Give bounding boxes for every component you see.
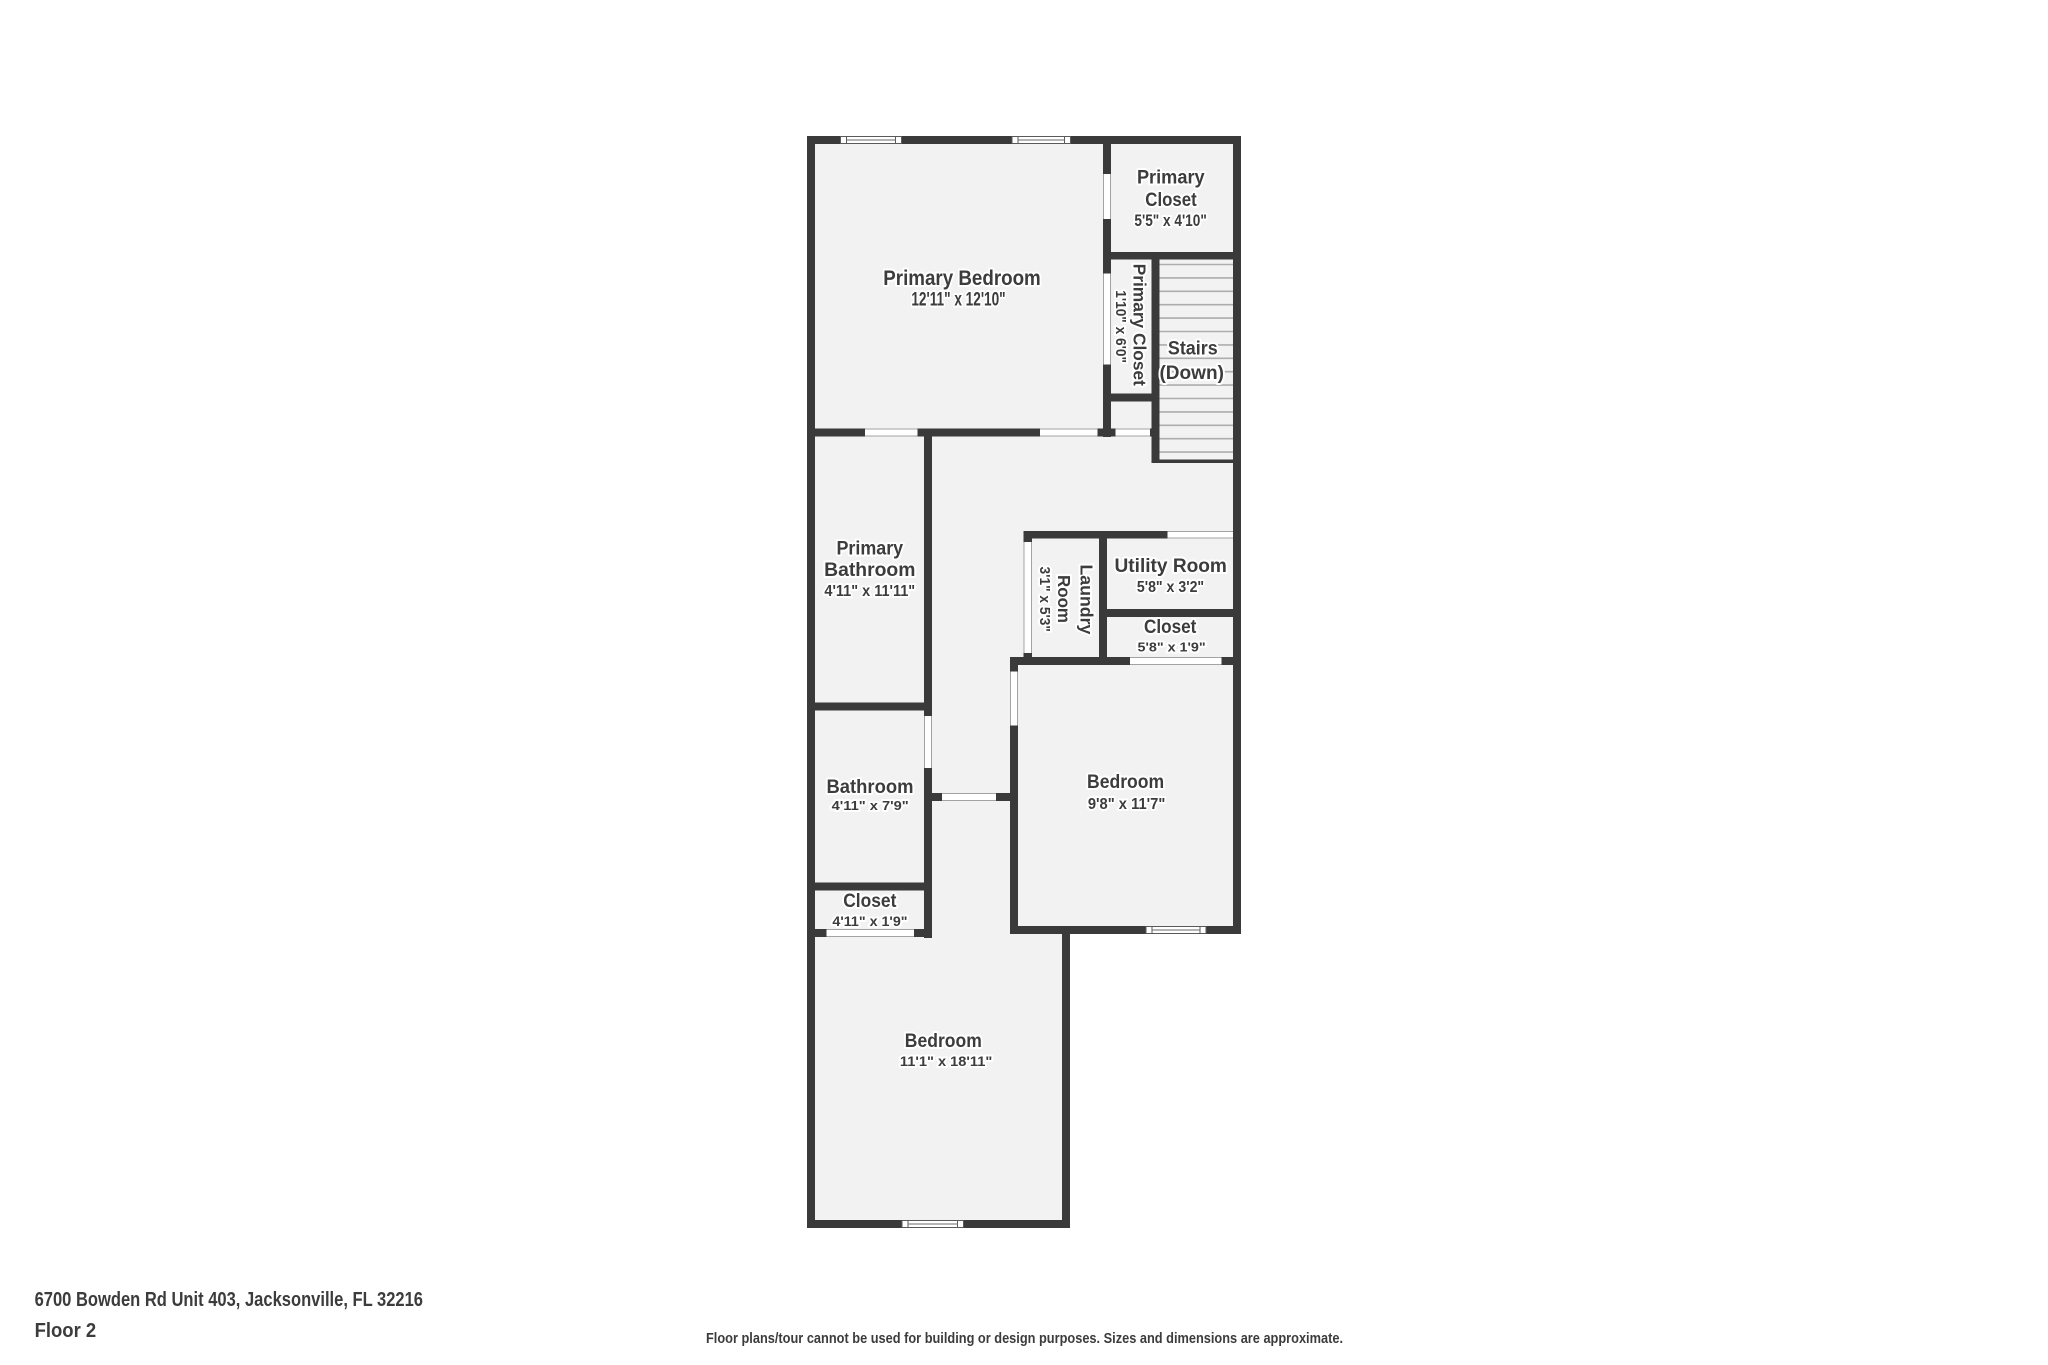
svg-text:Primary: Primary <box>1137 167 1205 189</box>
svg-text:5'8" x 1'9": 5'8" x 1'9" <box>1138 640 1206 655</box>
svg-text:Utility Room: Utility Room <box>1115 556 1227 577</box>
svg-text:Stairs: Stairs <box>1168 339 1218 360</box>
svg-text:Primary Closet: Primary Closet <box>1129 264 1149 386</box>
svg-text:4'11" x 7'9": 4'11" x 7'9" <box>832 798 909 813</box>
svg-text:Closet: Closet <box>1144 617 1197 638</box>
svg-text:Bedroom: Bedroom <box>1087 772 1164 793</box>
svg-text:11'1" x 18'11": 11'1" x 18'11" <box>900 1053 992 1069</box>
svg-text:6700 Bowden Rd Unit 403, Jacks: 6700 Bowden Rd Unit 403, Jacksonville, F… <box>35 1289 423 1311</box>
svg-text:Primary Bedroom: Primary Bedroom <box>883 266 1041 290</box>
svg-text:9'8" x 11'7": 9'8" x 11'7" <box>1088 796 1166 813</box>
svg-text:5'5" x 4'10": 5'5" x 4'10" <box>1134 212 1206 230</box>
svg-text:Room: Room <box>1054 575 1074 623</box>
svg-text:Floor plans/tour cannot be use: Floor plans/tour cannot be used for buil… <box>706 1331 1343 1347</box>
svg-text:(Down): (Down) <box>1159 363 1224 384</box>
svg-text:Bedroom: Bedroom <box>905 1031 982 1052</box>
svg-text:4'11" x 1'9": 4'11" x 1'9" <box>832 914 907 929</box>
svg-text:3'1" x 5'3": 3'1" x 5'3" <box>1036 567 1052 632</box>
svg-text:Primary: Primary <box>836 538 903 559</box>
svg-text:12'11" x 12'10": 12'11" x 12'10" <box>911 290 1005 311</box>
svg-text:Floor 2: Floor 2 <box>35 1320 97 1342</box>
svg-text:Laundry: Laundry <box>1077 564 1097 634</box>
svg-text:Closet: Closet <box>1145 189 1197 211</box>
svg-text:Bathroom: Bathroom <box>827 777 914 798</box>
svg-text:1'10" x 6'0": 1'10" x 6'0" <box>1112 290 1128 363</box>
svg-text:5'8" x 3'2": 5'8" x 3'2" <box>1137 579 1204 596</box>
svg-text:Bathroom: Bathroom <box>824 560 915 581</box>
svg-text:4'11" x 11'11": 4'11" x 11'11" <box>824 583 915 600</box>
svg-text:Closet: Closet <box>843 890 897 912</box>
